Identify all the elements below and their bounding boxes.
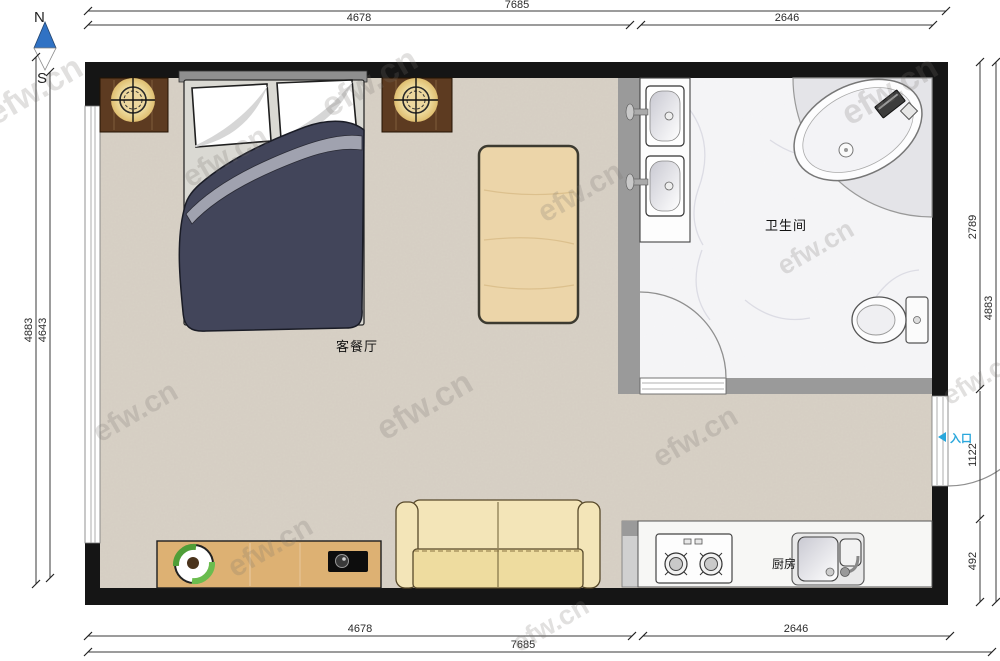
toilet-flush-button <box>914 317 921 324</box>
dim-top-total: 7685 <box>505 0 529 11</box>
counter-end-block <box>622 521 638 536</box>
kitchen-label: 厨房 <box>772 556 796 571</box>
burner-center <box>670 558 683 571</box>
window-left-wall <box>85 106 100 543</box>
tv-lens <box>336 555 349 568</box>
stove <box>656 534 732 583</box>
bathroom-left-partition-wall <box>618 78 640 394</box>
dim-bottom-right: 2646 <box>784 623 808 635</box>
dim-right-kitchen: 492 <box>967 552 979 570</box>
dim-left-inner: 4643 <box>37 318 49 342</box>
sink-drain <box>665 182 673 190</box>
bathroom-label: 卫生间 <box>765 218 807 233</box>
kitchen-counter <box>622 521 932 587</box>
floorplan-svg: 客餐厅 卫生间 厨房 入口 N S 7685 4678 2646 4678 26… <box>0 0 1000 661</box>
bathroom-bottom-partition-wall <box>726 378 932 394</box>
dim-left-outer: 4883 <box>23 318 35 342</box>
living-dining-label: 客餐厅 <box>336 339 378 354</box>
tv-lens-glint <box>342 557 346 561</box>
floorplan-canvas: 客餐厅 卫生间 厨房 入口 N S 7685 4678 2646 4678 26… <box>0 0 1000 661</box>
burner-left <box>665 553 687 575</box>
toilet <box>852 297 928 343</box>
dim-top-left: 4678 <box>347 12 371 24</box>
burner-right <box>700 553 722 575</box>
kitchen-sink <box>792 533 864 585</box>
burner-center <box>705 558 718 571</box>
stove-knob <box>695 539 702 544</box>
bathroom-door-leaf <box>640 378 726 394</box>
tub-drain-dot <box>844 148 848 152</box>
entrance-text: 入口 <box>950 432 972 445</box>
dim-right-outer: 4883 <box>983 296 995 320</box>
toilet-seat <box>857 305 895 335</box>
stove-knob <box>684 539 691 544</box>
sink-drain <box>826 568 834 576</box>
window-frame <box>85 106 100 543</box>
dim-top-right: 2646 <box>775 12 799 24</box>
dim-right-entrance: 1122 <box>967 443 979 467</box>
sofa <box>396 500 600 588</box>
faucet-handle <box>626 104 634 120</box>
faucet-base <box>841 568 850 577</box>
table-top <box>479 146 578 323</box>
dim-bottom-left: 4678 <box>348 623 372 635</box>
compass-north-label: N <box>34 9 45 26</box>
coffee-table <box>479 146 578 323</box>
nightstand-left <box>100 78 168 132</box>
sink-drain <box>665 112 673 120</box>
plant-center <box>187 557 199 569</box>
dim-right-bathroom: 2789 <box>967 215 979 239</box>
